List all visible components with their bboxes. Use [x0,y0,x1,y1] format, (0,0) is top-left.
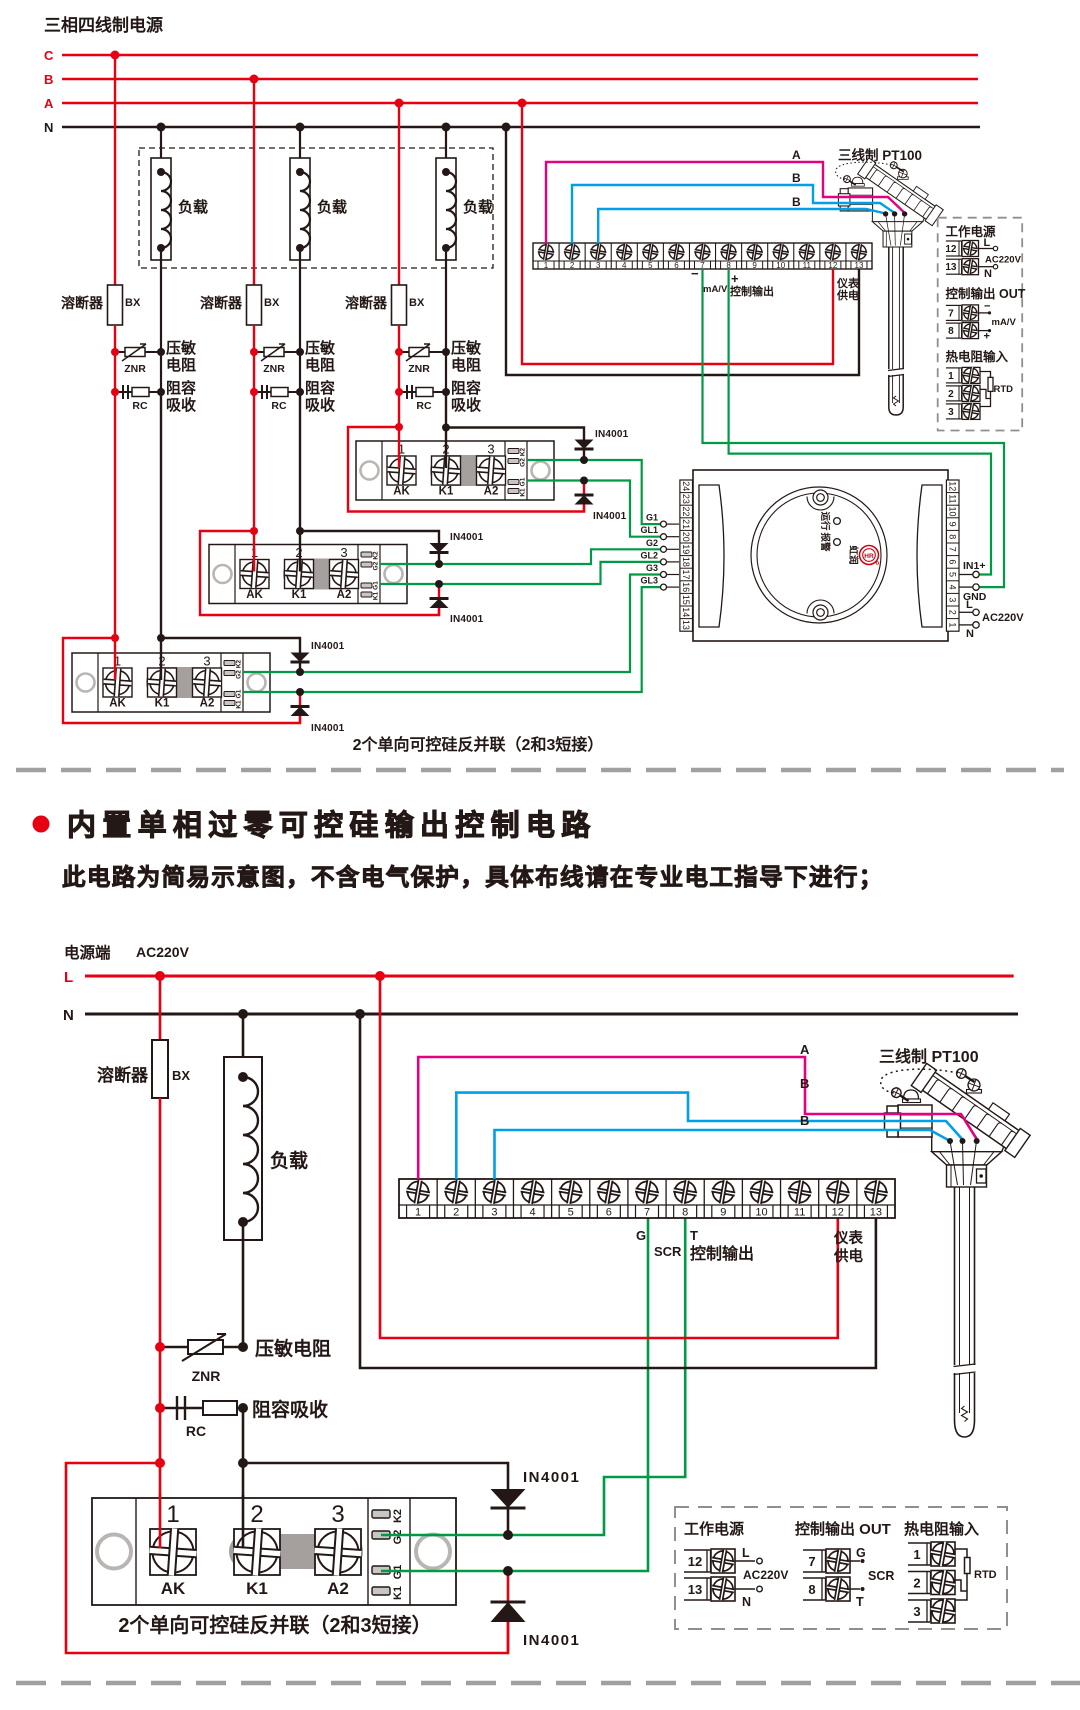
svg-text:+: + [731,271,739,286]
svg-text:A2: A2 [327,1579,349,1598]
svg-text:A2: A2 [484,486,499,498]
svg-text:1: 1 [415,1207,421,1219]
svg-text:10: 10 [776,261,785,270]
svg-text:此电路为简易示意图，不含电气保护，具体布线请在专业电工指导下: 此电路为简易示意图，不含电气保护，具体布线请在专业电工指导下进行； [62,863,884,891]
svg-text:控制输出: 控制输出 [730,284,774,298]
svg-text:14: 14 [681,607,691,617]
svg-text:K2: K2 [392,1509,404,1523]
svg-text:2个单向可控硅反并联（2和3短接）: 2个单向可控硅反并联（2和3短接） [353,735,604,754]
svg-text:G1: G1 [520,477,527,486]
svg-text:12: 12 [832,1207,844,1219]
svg-text:三线制 PT100: 三线制 PT100 [838,147,922,163]
svg-text:5: 5 [948,572,958,577]
svg-text:2: 2 [948,389,954,400]
svg-text:1: 1 [948,622,958,627]
svg-text:G: G [856,1546,866,1560]
svg-text:9: 9 [752,261,757,270]
svg-text:内置单相过零可控硅输出控制电路: 内置单相过零可控硅输出控制电路 [67,808,597,842]
svg-text:12: 12 [945,244,957,255]
svg-text:控制输出 OUT: 控制输出 OUT [946,286,1026,301]
svg-text:阻容: 阻容 [166,379,196,397]
svg-text:AC220V: AC220V [136,944,190,960]
svg-text:控制输出: 控制输出 [690,1244,754,1263]
svg-text:RTD: RTD [974,1569,997,1581]
svg-text:阻容: 阻容 [305,379,335,397]
svg-text:20: 20 [681,532,691,542]
svg-text:C: C [44,48,54,63]
svg-text:IN4001: IN4001 [311,723,345,734]
svg-text:N: N [742,1595,751,1609]
svg-text:G1: G1 [236,689,243,698]
svg-text:mA/V: mA/V [992,317,1017,328]
svg-text:6: 6 [674,261,679,270]
svg-text:吸收: 吸收 [166,396,196,414]
svg-text:RC: RC [271,400,287,412]
svg-text:IN4001: IN4001 [450,614,484,625]
svg-text:A: A [792,148,801,162]
svg-text:4: 4 [622,261,627,270]
svg-text:16: 16 [681,582,691,592]
svg-text:IN4001: IN4001 [593,511,627,522]
svg-text:15: 15 [681,595,691,605]
svg-text:3: 3 [331,1501,344,1528]
svg-text:G: G [636,1228,646,1243]
svg-text:K1: K1 [155,698,170,710]
svg-text:5: 5 [648,261,653,270]
svg-text:7: 7 [808,1554,815,1569]
svg-text:3: 3 [491,1207,497,1219]
svg-text:7: 7 [948,308,954,319]
svg-text:A: A [800,1042,810,1057]
svg-text:G3: G3 [646,563,658,573]
svg-text:仪表: 仪表 [836,276,860,290]
svg-text:1: 1 [913,1547,920,1562]
svg-text:BX: BX [172,1068,190,1083]
svg-text:吸收: 吸收 [451,396,481,414]
svg-text:L: L [966,599,973,611]
svg-text:8: 8 [808,1582,815,1597]
svg-text:4: 4 [529,1207,535,1219]
svg-text:AC220V: AC220V [982,612,1024,624]
svg-text:电阻: 电阻 [166,356,196,374]
svg-text:AK: AK [393,486,410,498]
svg-text:8: 8 [948,534,958,539]
svg-text:G2: G2 [646,538,658,548]
svg-text:3: 3 [596,261,601,270]
svg-text:mA/V: mA/V [703,284,728,295]
svg-text:报警: 报警 [819,532,831,552]
svg-text:1: 1 [948,371,954,382]
svg-text:AK: AK [161,1579,186,1598]
svg-text:BX: BX [264,297,280,309]
svg-text:13: 13 [855,261,864,270]
svg-text:B: B [800,1076,809,1091]
svg-text:L: L [742,1546,750,1560]
svg-text:IN4001: IN4001 [450,532,484,543]
svg-text:G2: G2 [236,670,243,679]
svg-text:电阻: 电阻 [451,356,481,374]
svg-text:10: 10 [948,506,958,516]
svg-text:A2: A2 [200,698,215,710]
svg-text:13: 13 [681,620,691,630]
svg-text:10: 10 [755,1207,767,1219]
svg-text:IN1+: IN1+ [963,560,985,572]
svg-text:B: B [792,195,801,209]
svg-text:K1: K1 [292,589,307,601]
svg-text:3: 3 [203,654,210,669]
svg-text:仪表: 仪表 [833,1229,863,1247]
svg-text:RC: RC [186,1423,206,1439]
svg-text:2: 2 [948,610,958,615]
svg-text:K1: K1 [520,488,527,497]
svg-text:13: 13 [870,1207,882,1219]
svg-text:溶断器: 溶断器 [200,295,243,311]
svg-text:GL1: GL1 [640,525,658,535]
svg-text:溶断器: 溶断器 [97,1065,149,1085]
svg-text:电阻: 电阻 [305,356,335,374]
svg-text:N: N [44,120,53,135]
svg-text:A: A [44,96,54,111]
svg-text:N: N [984,268,992,280]
svg-text:3: 3 [948,597,958,602]
svg-text:13: 13 [945,262,957,273]
svg-text:G2: G2 [520,458,527,467]
svg-text:T: T [690,1228,698,1243]
svg-text:压敏: 压敏 [305,339,336,357]
svg-text:控制输出 OUT: 控制输出 OUT [795,1520,891,1538]
svg-text:供电: 供电 [833,1247,863,1265]
svg-text:负载: 负载 [317,198,347,216]
svg-text:吸收: 吸收 [305,396,335,414]
svg-text:11: 11 [948,494,958,503]
svg-text:2: 2 [453,1207,459,1219]
svg-text:AC220V: AC220V [985,255,1022,266]
svg-text:13: 13 [688,1582,702,1597]
svg-text:RTD: RTD [994,384,1014,395]
svg-text:ZNR: ZNR [192,1368,221,1384]
svg-text:K1: K1 [439,486,454,498]
svg-text:3: 3 [340,545,347,560]
svg-text:B: B [44,72,53,87]
svg-text:K2: K2 [520,447,527,456]
svg-text:A2: A2 [337,589,352,601]
svg-text:K1: K1 [246,1579,268,1598]
svg-text:7: 7 [700,261,705,270]
svg-text:7: 7 [644,1207,650,1219]
svg-text:HR: HR [864,553,874,560]
svg-text:L: L [64,969,73,986]
svg-text:GL3: GL3 [640,576,658,586]
svg-text:压敏: 压敏 [166,339,197,357]
svg-text:22: 22 [681,506,691,516]
svg-text:−: − [691,266,699,281]
svg-text:1: 1 [544,261,549,270]
svg-text:18: 18 [681,557,691,567]
svg-text:AC220V: AC220V [743,1568,788,1582]
svg-text:9: 9 [720,1207,726,1219]
svg-text:3: 3 [487,442,494,457]
svg-text:K1: K1 [373,591,380,600]
svg-text:AK: AK [109,698,126,710]
svg-text:2: 2 [570,261,575,270]
svg-text:B: B [800,1113,809,1128]
svg-text:负载: 负载 [270,1149,308,1172]
svg-text:AK: AK [246,589,263,601]
svg-text:SCR: SCR [868,1569,894,1583]
svg-text:8: 8 [682,1207,688,1219]
svg-text:阻容吸收: 阻容吸收 [252,1398,328,1421]
svg-text:23: 23 [681,494,691,504]
svg-text:G2: G2 [392,1530,404,1545]
svg-text:2: 2 [913,1576,920,1591]
svg-text:RC: RC [132,400,148,412]
svg-text:三线制 PT100: 三线制 PT100 [879,1047,979,1066]
svg-text:工作电源: 工作电源 [684,1520,744,1538]
svg-text:压敏: 压敏 [451,339,482,357]
svg-text:溶断器: 溶断器 [345,295,388,311]
svg-text:热电阻输入: 热电阻输入 [904,1520,979,1538]
svg-text:G1: G1 [646,513,658,523]
svg-text:K1: K1 [236,700,243,709]
svg-text:12: 12 [948,481,958,491]
svg-text:热电阻输入: 热电阻输入 [946,349,1009,364]
svg-text:B: B [792,171,801,185]
svg-text:7: 7 [948,547,958,552]
svg-text:+: + [984,331,990,343]
svg-text:4: 4 [948,585,958,590]
svg-text:G2: G2 [373,561,380,570]
svg-text:11: 11 [803,261,812,270]
svg-text:K1: K1 [392,1586,404,1600]
svg-text:电源端: 电源端 [64,943,111,962]
svg-text:11: 11 [794,1207,805,1219]
svg-text:IN4001: IN4001 [523,1632,580,1649]
svg-text:8: 8 [726,261,731,270]
svg-text:24: 24 [681,481,691,491]
svg-text:运行: 运行 [819,511,831,531]
svg-text:6: 6 [606,1207,612,1219]
svg-text:三相四线制电源: 三相四线制电源 [44,15,163,35]
svg-text:压敏电阻: 压敏电阻 [255,1337,331,1360]
svg-text:负载: 负载 [178,198,208,216]
svg-text:17: 17 [681,569,691,579]
svg-text:21: 21 [681,519,691,529]
svg-text:12: 12 [688,1554,702,1569]
svg-text:1: 1 [166,1501,179,1528]
svg-text:−: − [984,301,990,313]
svg-text:溶断器: 溶断器 [61,295,104,311]
svg-text:2个单向可控硅反并联（2和3短接）: 2个单向可控硅反并联（2和3短接） [118,1613,431,1637]
svg-text:5: 5 [568,1207,574,1219]
svg-text:N: N [966,628,974,640]
svg-text:12: 12 [828,261,837,270]
svg-text:GL2: GL2 [640,550,658,560]
svg-text:K2: K2 [373,551,380,560]
svg-text:N: N [63,1007,74,1024]
svg-text:ZNR: ZNR [124,363,146,375]
svg-text:BX: BX [125,297,141,309]
svg-text:2: 2 [250,1501,263,1528]
svg-text:T: T [856,1595,864,1609]
svg-text:IN4001: IN4001 [595,429,629,440]
svg-text:负载: 负载 [463,198,493,216]
svg-text:ZNR: ZNR [263,363,285,375]
svg-text:BX: BX [409,297,425,309]
svg-text:G1: G1 [373,581,380,590]
svg-text:阻容: 阻容 [451,379,481,397]
svg-text:3: 3 [948,407,954,418]
svg-text:8: 8 [948,326,954,337]
svg-text:SCR: SCR [654,1244,682,1259]
svg-text:供电: 供电 [836,288,859,302]
svg-text:IN4001: IN4001 [523,1469,580,1486]
svg-text:IN4001: IN4001 [311,641,345,652]
svg-text:虹润: 虹润 [847,545,859,564]
svg-text:9: 9 [948,522,958,527]
svg-text:RC: RC [416,400,432,412]
svg-text:19: 19 [681,544,691,554]
svg-text:3: 3 [913,1604,920,1619]
svg-text:ZNR: ZNR [408,363,430,375]
svg-text:L: L [984,237,991,249]
svg-text:K2: K2 [236,659,243,668]
svg-text:6: 6 [948,559,958,564]
